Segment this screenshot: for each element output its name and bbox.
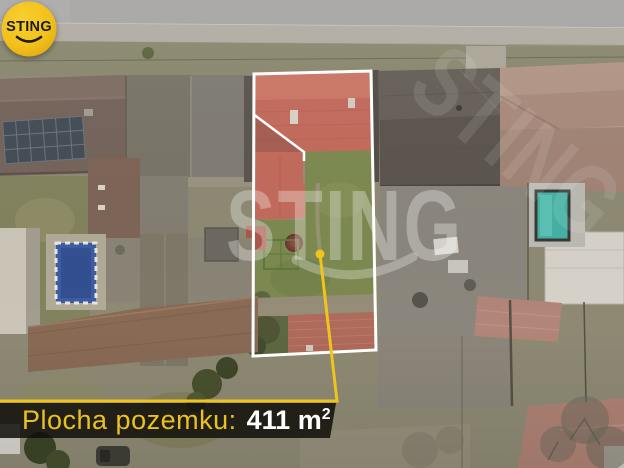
pointer-dot (316, 250, 325, 259)
logo-text: STING (6, 19, 52, 35)
real-estate-aerial-photo: STING STING Plocha pozemku: 411 m2 STING (0, 0, 624, 468)
area-banner: Plocha pozemku: 411 m2 (0, 403, 336, 438)
annotation-overlay (0, 0, 624, 468)
area-value: 411 m2 (247, 405, 331, 436)
area-label: Plocha pozemku: (22, 405, 237, 436)
area-number: 411 (247, 405, 291, 435)
area-unit-exponent: 2 (322, 406, 331, 423)
plot-outline (253, 71, 376, 356)
watermark-smile (296, 257, 413, 275)
pointer-arrow (0, 250, 337, 402)
sting-logo: STING (0, 0, 58, 58)
area-unit: m (298, 405, 322, 435)
